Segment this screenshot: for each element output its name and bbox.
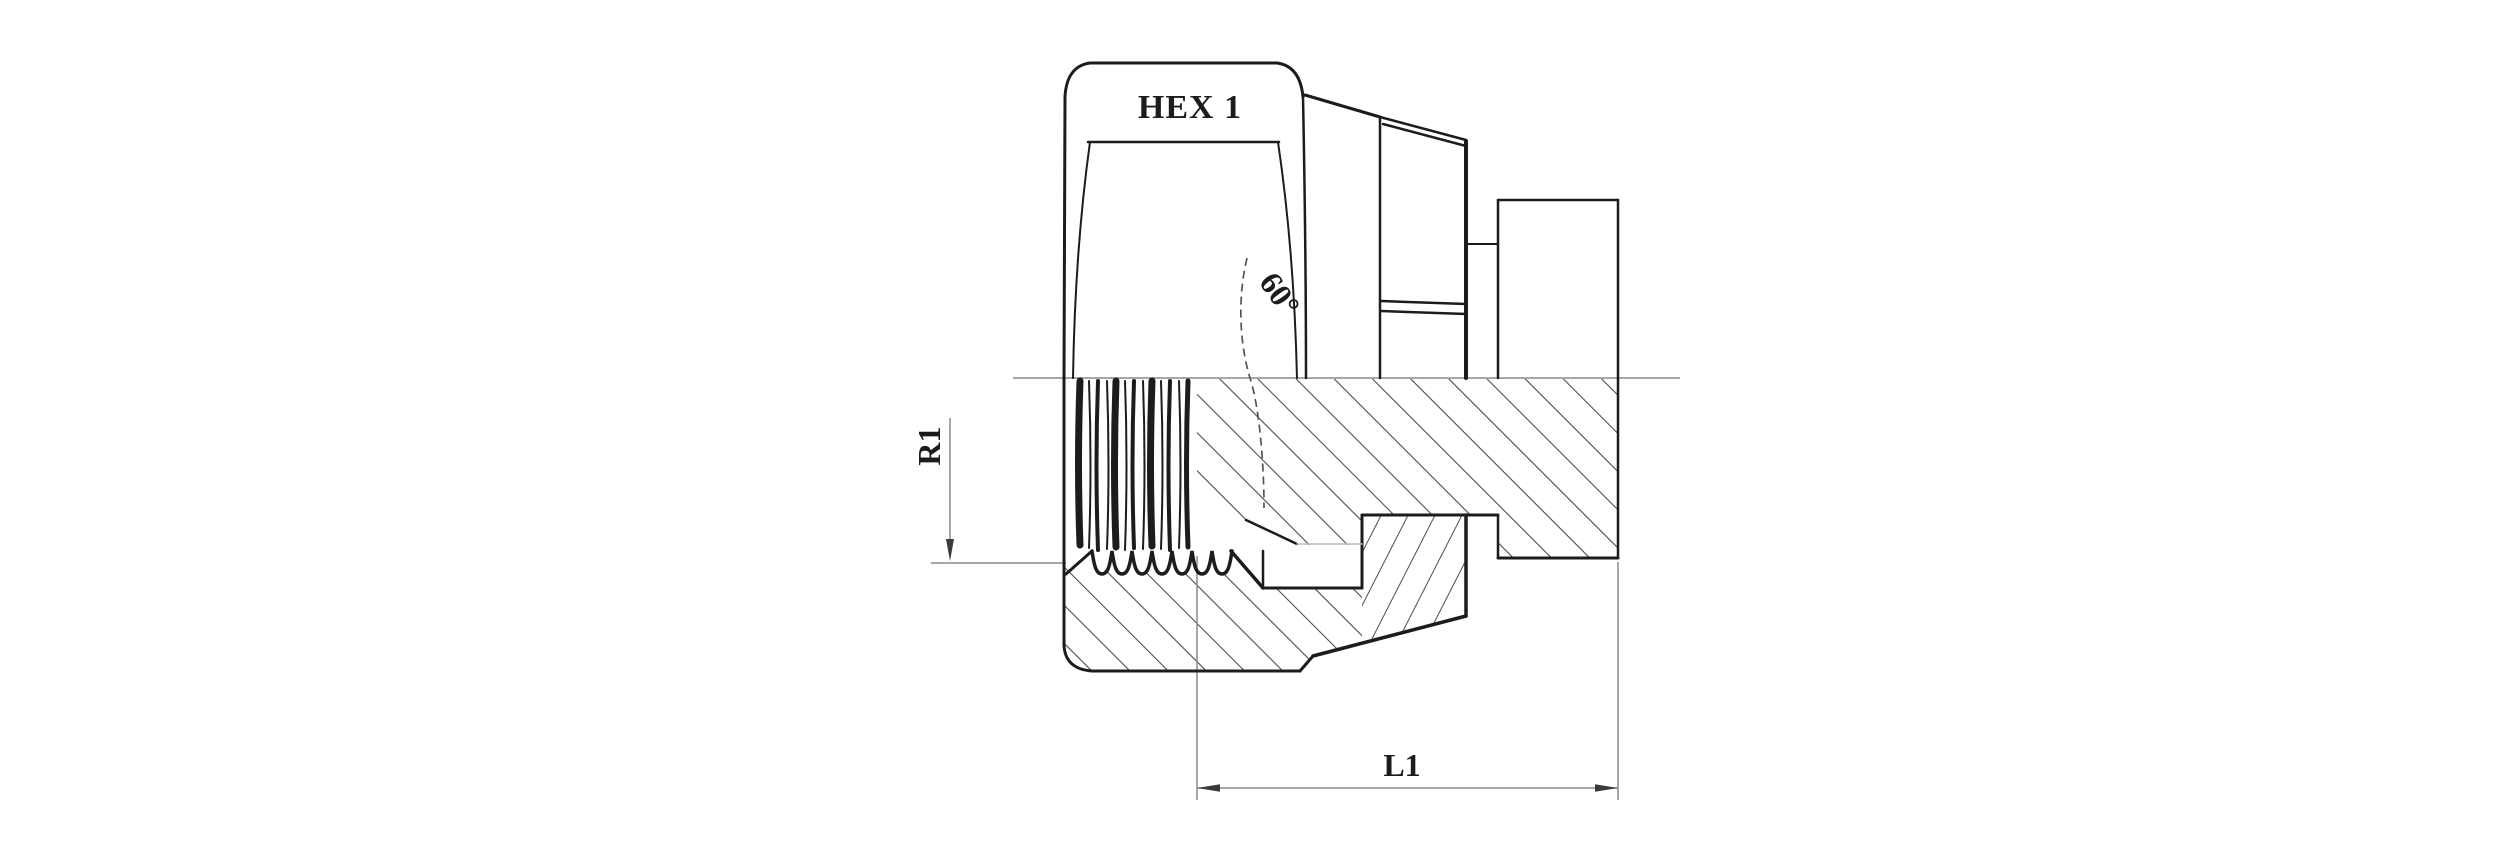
thread-crest-line bbox=[1143, 381, 1145, 549]
thread-crest-line bbox=[1187, 381, 1189, 547]
hex-size-label: HEX 1 bbox=[1138, 89, 1242, 126]
fitting-section-drawing: HEX 1 R1 60° L1 bbox=[0, 0, 2500, 854]
thread-crest-line bbox=[1133, 381, 1135, 548]
radius-dimension-label: R1 bbox=[911, 426, 947, 465]
l1-arrowhead-left bbox=[1197, 784, 1220, 792]
hatch-body-region bbox=[1064, 379, 1617, 671]
section-hatch-main bbox=[1064, 379, 1617, 671]
hex-corner-arc-right bbox=[1277, 63, 1303, 97]
hex-corner-arc-left bbox=[1065, 63, 1090, 97]
cone-chamfer-line-1 bbox=[1380, 117, 1466, 140]
thread-crest-line bbox=[1097, 381, 1099, 550]
cone-top-silhouette bbox=[1305, 95, 1380, 117]
cone-surface-line-1 bbox=[1381, 301, 1466, 304]
thread-relief-undercut bbox=[1263, 545, 1362, 588]
thread-crest-line bbox=[1107, 381, 1109, 549]
thread-crest-line bbox=[1179, 381, 1181, 548]
thread-crest-line bbox=[1161, 381, 1163, 549]
section-hatch-insert bbox=[1362, 516, 1467, 644]
thread-crest-line bbox=[1115, 381, 1117, 547]
hex-left-edge bbox=[1064, 97, 1065, 378]
thread-crest-line bbox=[1151, 381, 1153, 546]
thread-profile-scallops bbox=[1092, 551, 1232, 574]
thread-crest-line bbox=[1079, 381, 1081, 545]
cone-chamfer-line-2 bbox=[1383, 124, 1466, 146]
length-dimension-label: L1 bbox=[1383, 747, 1420, 783]
thread-crest-line bbox=[1169, 381, 1171, 550]
hex-right-edge bbox=[1303, 97, 1306, 378]
hex-flat-edge-right bbox=[1278, 142, 1297, 378]
hatch-cone-tip-region bbox=[1362, 516, 1467, 644]
hex-flat-edge-left bbox=[1073, 142, 1090, 378]
thread-crest-line bbox=[1125, 381, 1127, 550]
l1-arrowhead-right bbox=[1595, 784, 1618, 792]
technical-drawing-page: HEX 1 R1 60° L1 bbox=[0, 0, 2500, 854]
thread-crest-line bbox=[1089, 381, 1091, 548]
cone-surface-line-2 bbox=[1381, 311, 1466, 314]
r1-arrowhead bbox=[946, 539, 954, 561]
angle-dimension-label: 60° bbox=[1252, 265, 1307, 322]
